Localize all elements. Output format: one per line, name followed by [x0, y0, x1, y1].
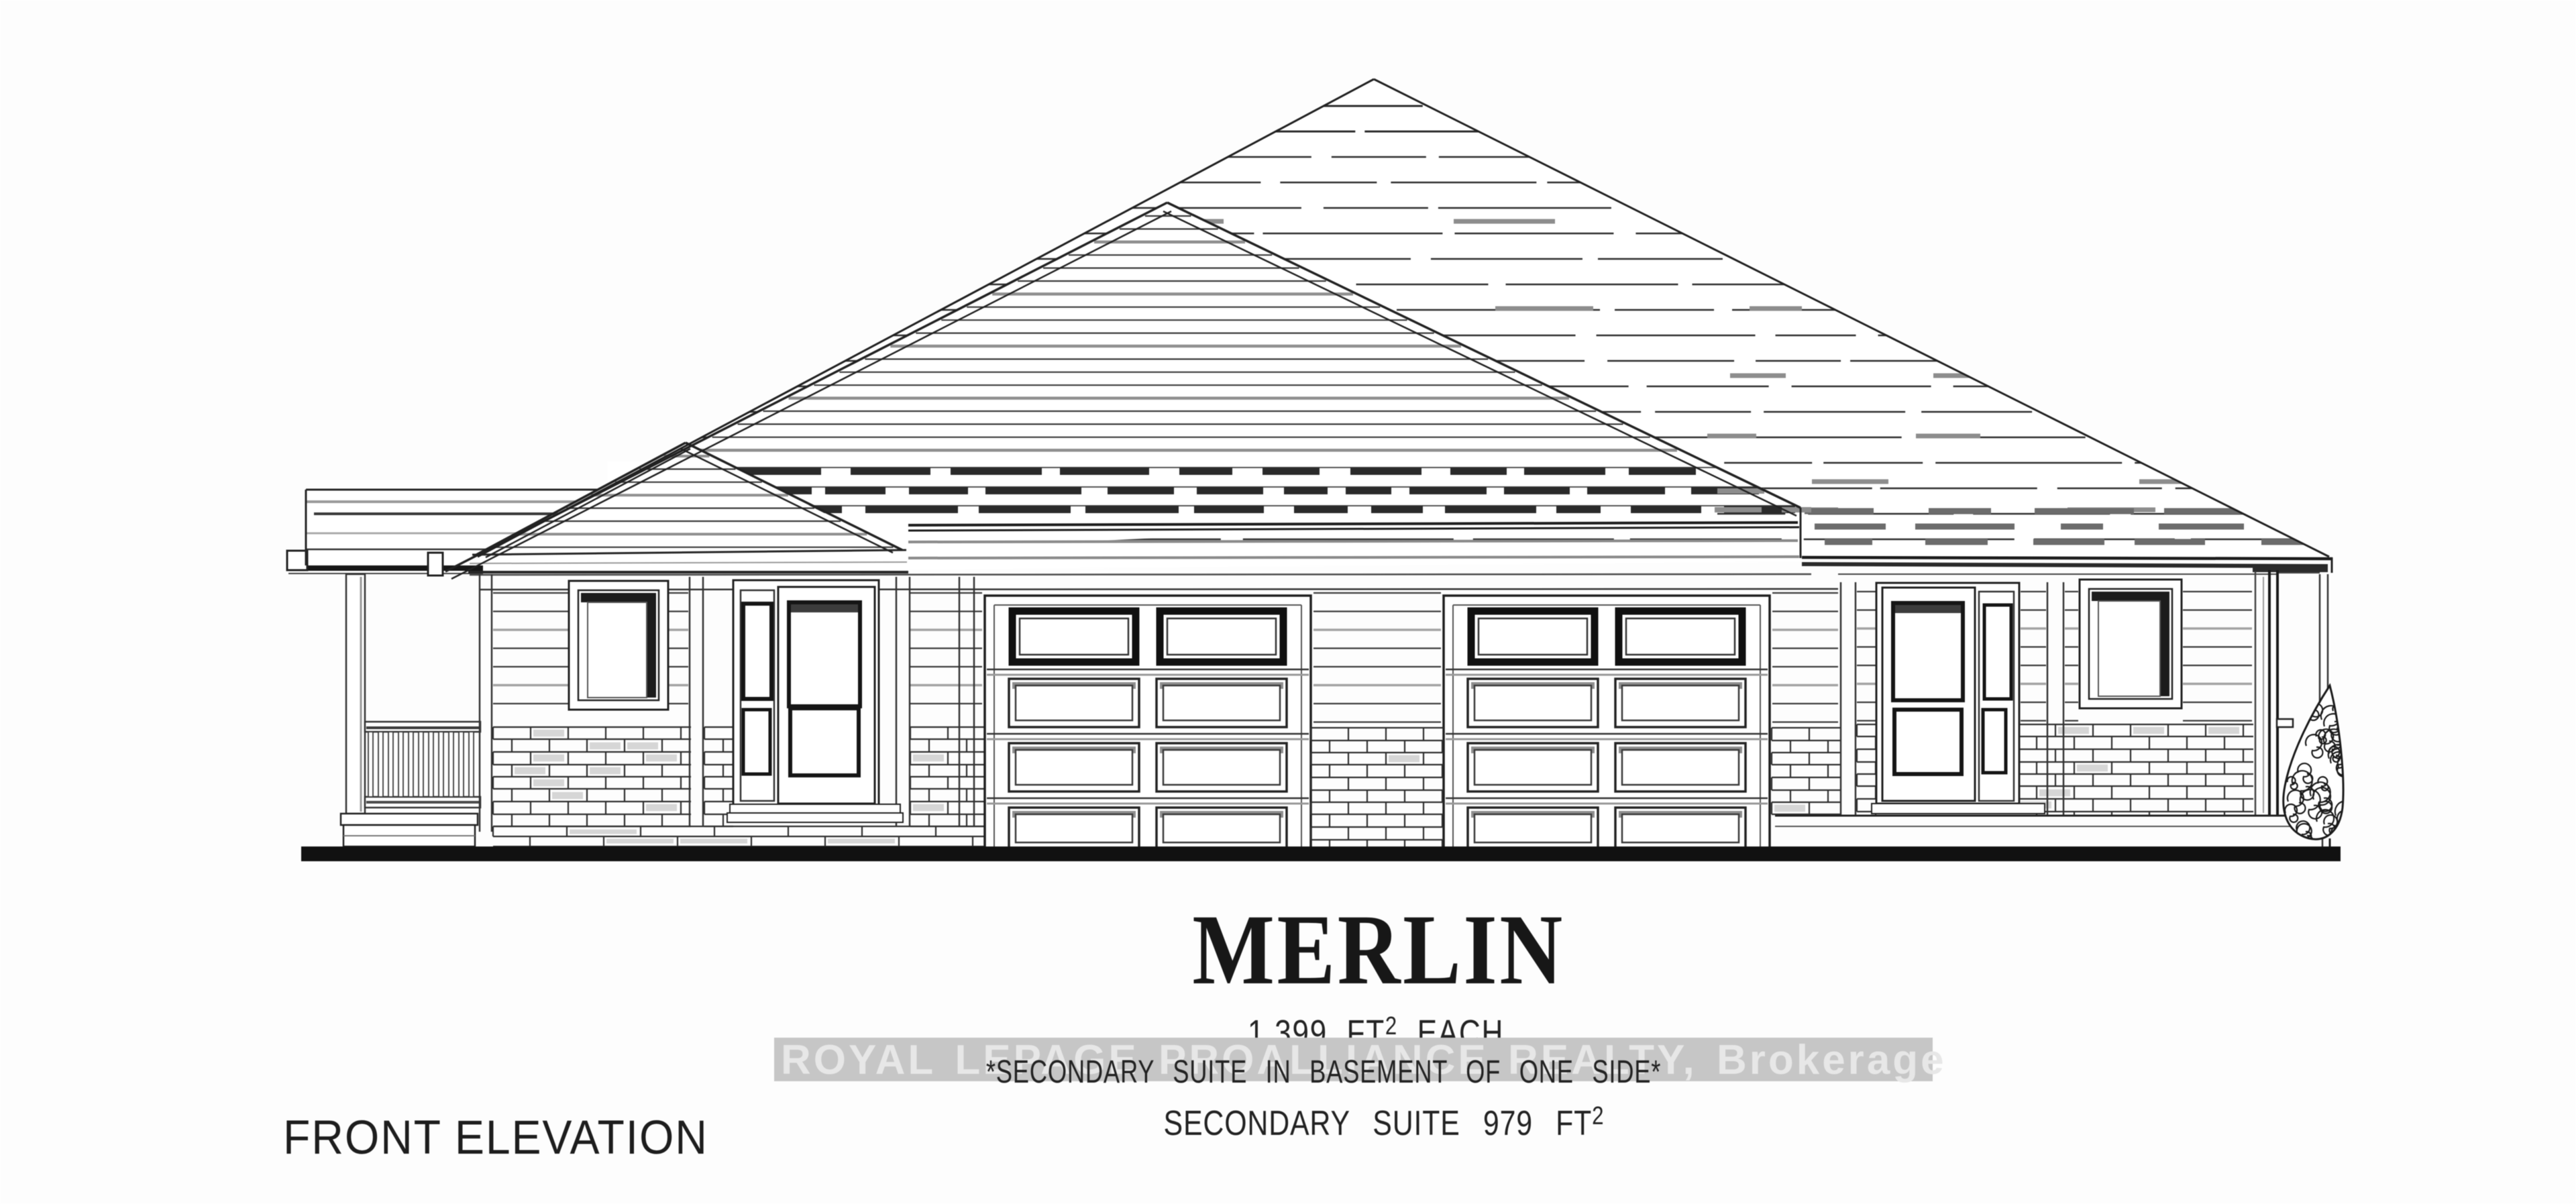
svg-text:SECONDARY SUITE 979 FT2: SECONDARY SUITE 979 FT2: [1164, 1101, 1605, 1143]
svg-text:MERLIN: MERLIN: [1192, 895, 1564, 1006]
svg-text:FRONT ELEVATION: FRONT ELEVATION: [283, 1111, 708, 1164]
svg-text:*SECONDARY SUITE IN BASEMENT O: *SECONDARY SUITE IN BASEMENT OF ONE SIDE…: [986, 1054, 1661, 1090]
